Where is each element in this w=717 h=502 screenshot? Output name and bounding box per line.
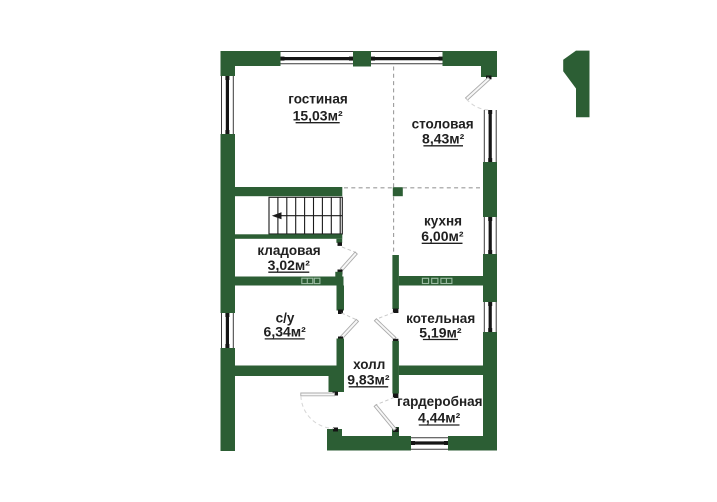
svg-text:гостиная: гостиная (288, 92, 347, 107)
svg-text:столовая: столовая (412, 116, 474, 131)
svg-text:4,44м²: 4,44м² (418, 410, 461, 426)
svg-text:кухня: кухня (424, 214, 462, 229)
svg-text:5,19м²: 5,19м² (419, 324, 462, 340)
svg-text:холл: холл (353, 357, 385, 372)
svg-text:3,02м²: 3,02м² (268, 257, 311, 273)
svg-text:6,34м²: 6,34м² (264, 323, 307, 339)
svg-text:кладовая: кладовая (257, 243, 320, 258)
svg-text:8,43м²: 8,43м² (422, 130, 465, 146)
svg-text:15,03м²: 15,03м² (293, 107, 343, 123)
svg-text:гардеробная: гардеробная (397, 394, 483, 409)
svg-text:9,83м²: 9,83м² (347, 371, 390, 387)
svg-text:6,00м²: 6,00м² (421, 228, 464, 244)
